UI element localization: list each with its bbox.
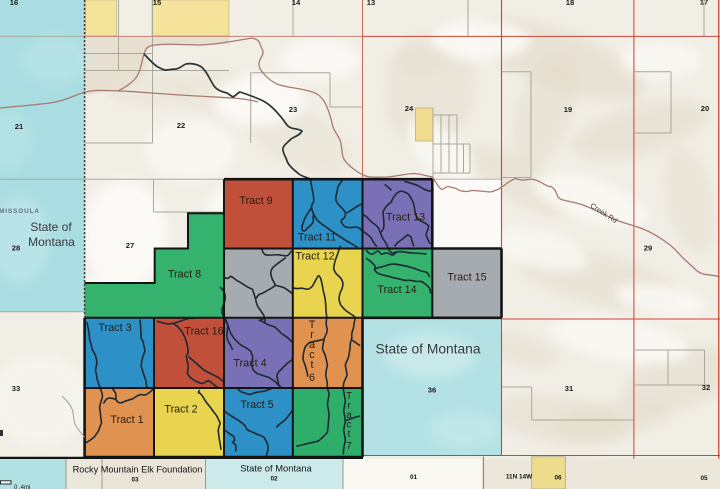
svg-text:MISSOULA: MISSOULA [0, 208, 40, 215]
svg-text:Tract 5: Tract 5 [240, 399, 273, 411]
svg-text:33: 33 [12, 384, 20, 393]
svg-text:24: 24 [405, 104, 414, 113]
svg-text:32: 32 [702, 383, 710, 392]
svg-text:14: 14 [292, 0, 301, 7]
svg-text:05: 05 [700, 475, 708, 482]
svg-text:Tract 9: Tract 9 [239, 195, 272, 207]
svg-text:18: 18 [566, 0, 574, 7]
svg-text:11N 14W: 11N 14W [506, 474, 533, 481]
svg-text:20: 20 [701, 104, 709, 113]
svg-text:29: 29 [644, 244, 652, 253]
svg-text:State of: State of [30, 220, 72, 234]
svg-text:19: 19 [564, 105, 572, 114]
svg-text:t: t [311, 359, 314, 371]
svg-text:Tract 8: Tract 8 [168, 269, 201, 281]
svg-text:Tract 16: Tract 16 [184, 326, 223, 338]
svg-text:0 .4mi: 0 .4mi [14, 485, 30, 489]
svg-text:03: 03 [131, 477, 139, 484]
svg-text:Tract 13: Tract 13 [386, 212, 425, 224]
svg-text:Montana: Montana [28, 235, 75, 249]
svg-text:28: 28 [12, 244, 20, 253]
svg-text:01: 01 [410, 474, 418, 481]
svg-text:6: 6 [309, 372, 315, 384]
svg-text:7: 7 [346, 441, 352, 452]
svg-text:27: 27 [126, 241, 134, 250]
svg-text:17: 17 [700, 0, 708, 6]
svg-text:Tract 1: Tract 1 [110, 414, 143, 426]
svg-text:15: 15 [153, 0, 162, 7]
svg-text:Tract 15: Tract 15 [447, 272, 486, 284]
svg-text:Tract 4: Tract 4 [233, 358, 266, 370]
svg-text:Rocky Mountain Elk Foundation: Rocky Mountain Elk Foundation [73, 465, 203, 475]
svg-text:13: 13 [367, 0, 375, 7]
svg-text:Tract 14: Tract 14 [377, 284, 416, 296]
svg-text:16: 16 [10, 0, 18, 7]
svg-text:02: 02 [270, 476, 278, 483]
svg-text:Tract 3: Tract 3 [98, 322, 131, 334]
svg-text:State of Montana: State of Montana [375, 342, 480, 357]
svg-text:Tract 12: Tract 12 [295, 251, 334, 263]
svg-text:06: 06 [554, 475, 562, 482]
svg-text:23: 23 [289, 105, 297, 114]
svg-text:Tract 11: Tract 11 [298, 232, 336, 244]
svg-text:t: t [348, 429, 351, 440]
svg-text:22: 22 [177, 121, 185, 130]
svg-text:Tract 2: Tract 2 [164, 404, 197, 416]
svg-text:36: 36 [428, 386, 436, 395]
svg-text:State of Montana: State of Montana [240, 463, 312, 474]
svg-text:21: 21 [15, 122, 24, 131]
svg-text:31: 31 [565, 384, 574, 393]
